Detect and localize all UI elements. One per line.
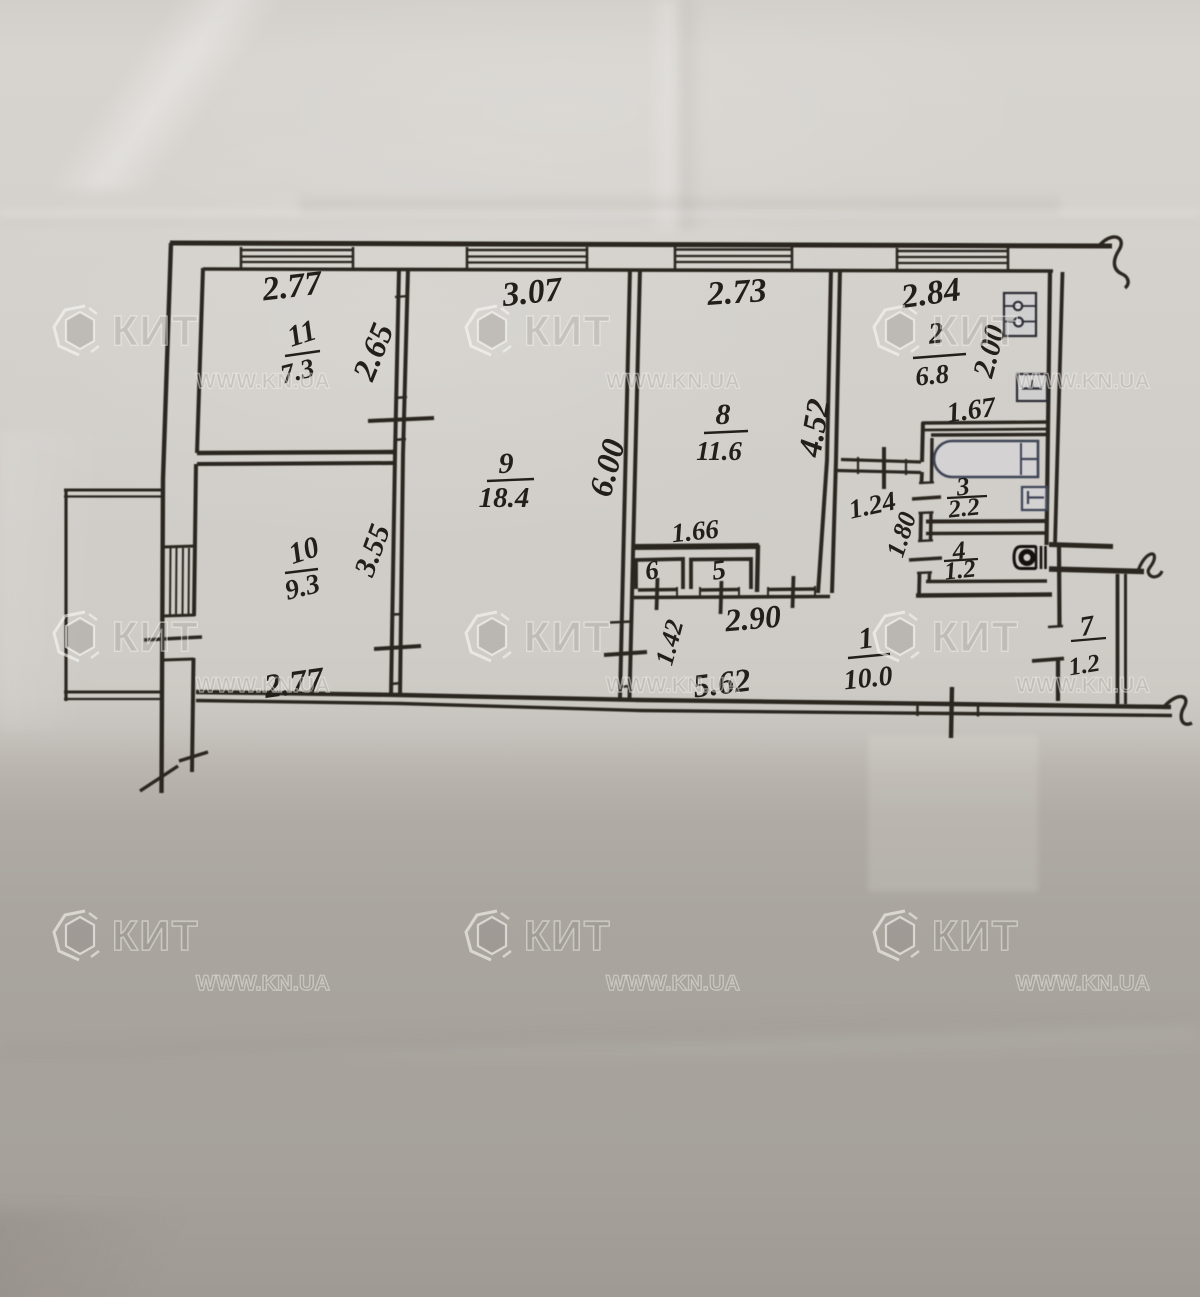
svg-text:1.42: 1.42 — [650, 617, 690, 668]
svg-text:4.52: 4.52 — [792, 396, 838, 460]
svg-text:18.4: 18.4 — [479, 482, 530, 514]
svg-text:2.90: 2.90 — [722, 598, 782, 639]
svg-text:9.3: 9.3 — [282, 568, 323, 607]
svg-text:1.66: 1.66 — [670, 514, 721, 549]
svg-text:9: 9 — [499, 447, 514, 480]
svg-text:11.6: 11.6 — [696, 436, 742, 466]
svg-text:10.0: 10.0 — [842, 661, 894, 697]
svg-text:2.73: 2.73 — [705, 272, 768, 313]
svg-text:8: 8 — [716, 398, 731, 431]
svg-text:1: 1 — [856, 621, 875, 656]
svg-text:3.55: 3.55 — [348, 520, 397, 582]
svg-text:11: 11 — [283, 313, 320, 353]
svg-text:10: 10 — [284, 530, 323, 571]
svg-text:6.8: 6.8 — [914, 358, 951, 391]
svg-text:2.77: 2.77 — [259, 264, 326, 308]
svg-text:2.65: 2.65 — [346, 318, 401, 386]
